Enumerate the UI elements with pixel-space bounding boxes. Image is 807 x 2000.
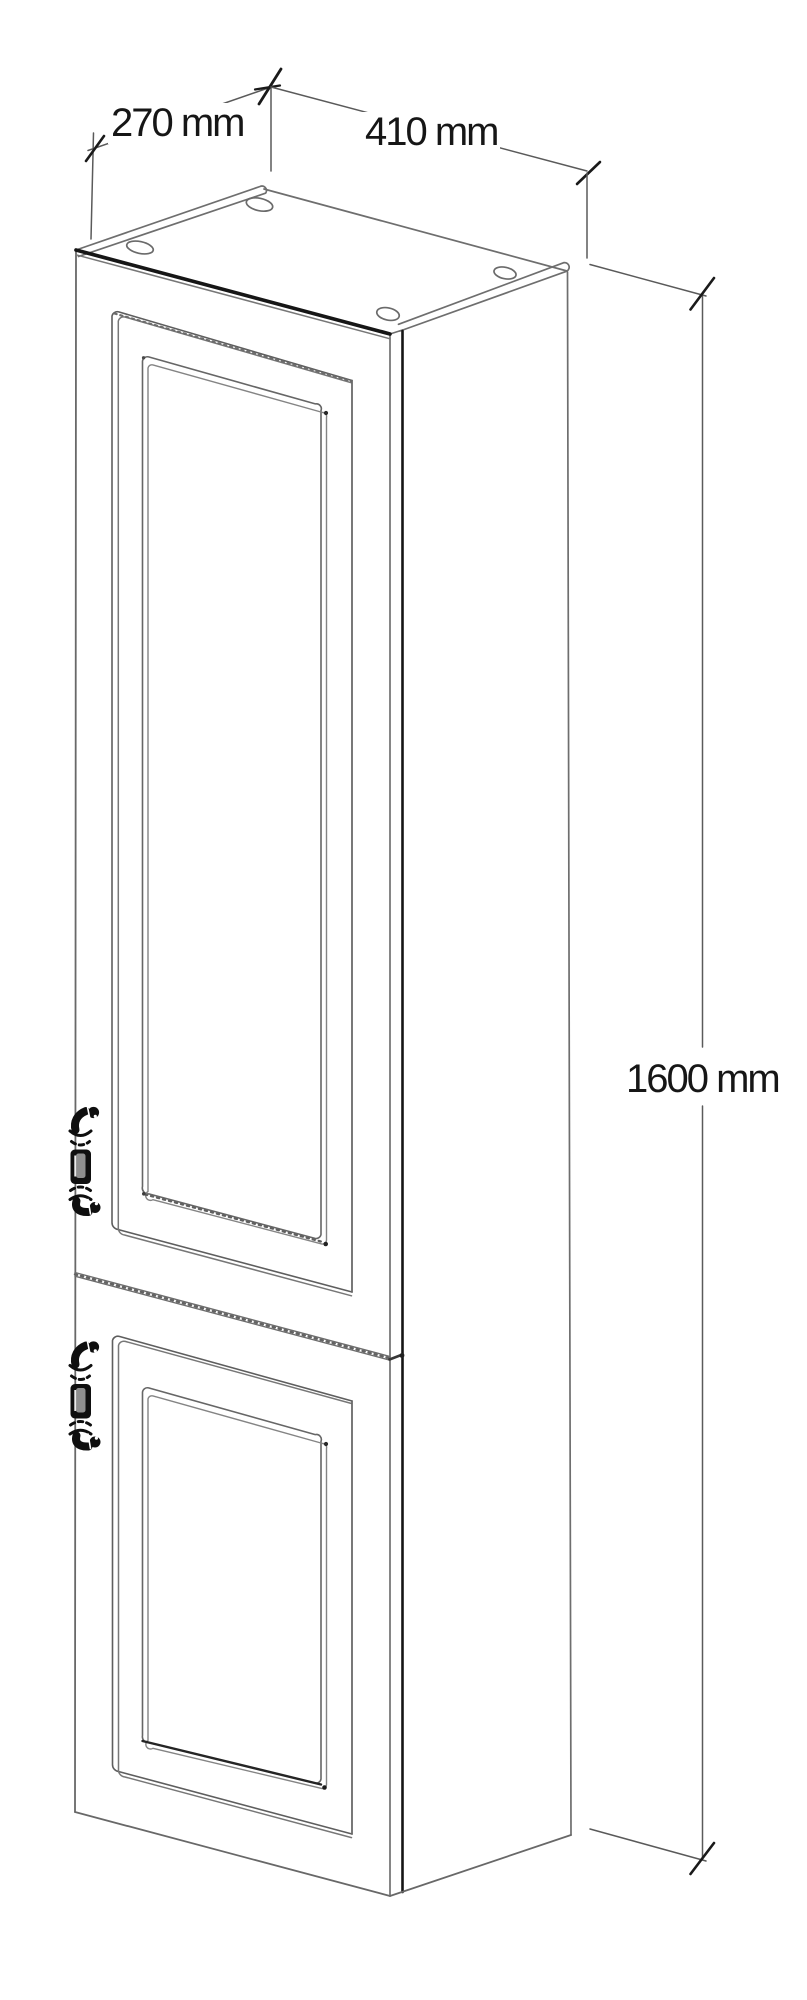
svg-text:410 mm: 410 mm [365, 110, 498, 154]
svg-text:270 mm: 270 mm [111, 101, 244, 145]
svg-text:1600 mm: 1600 mm [626, 1057, 779, 1101]
